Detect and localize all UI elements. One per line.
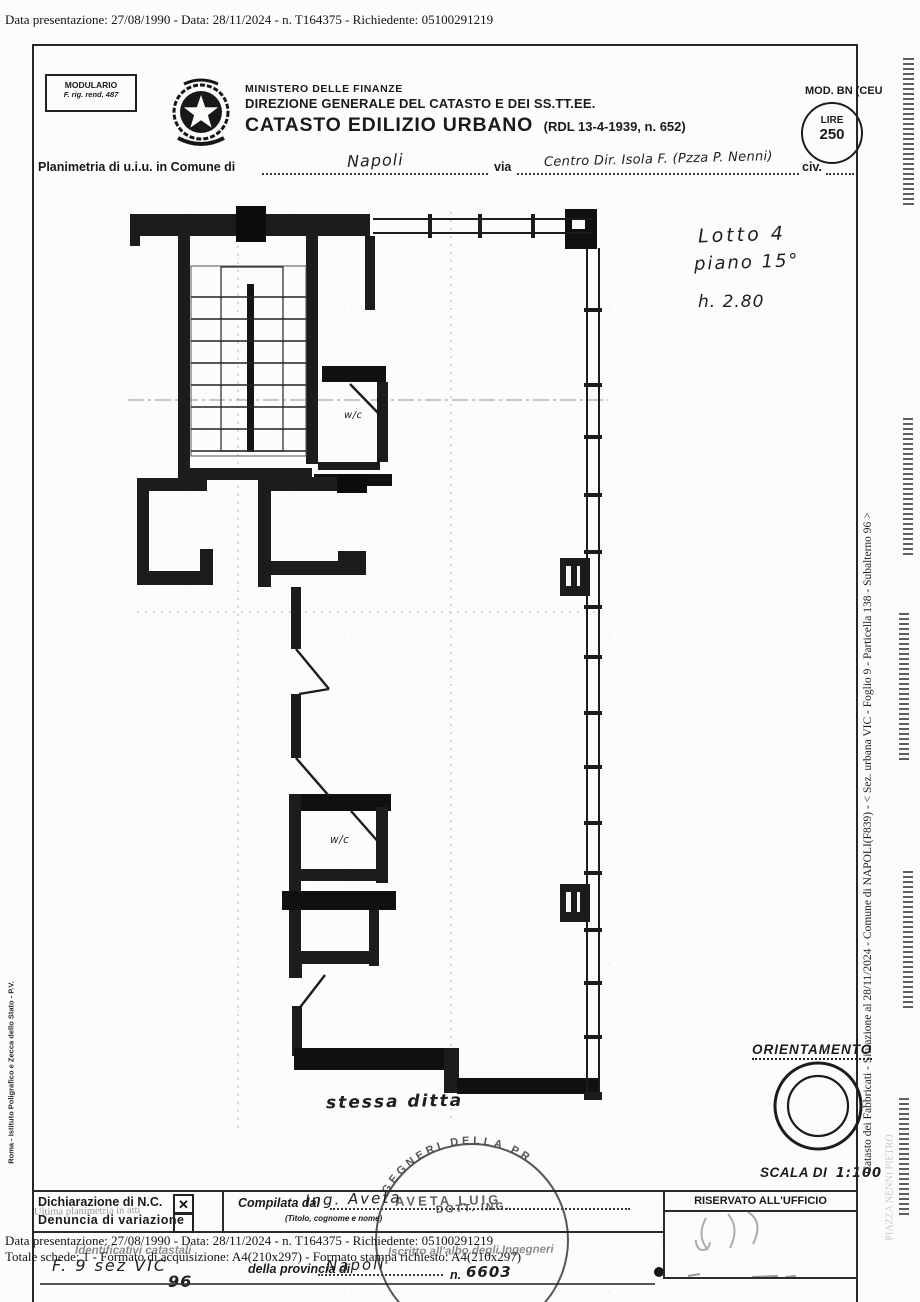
scanned-cadastral-document: Data presentazione: 27/08/1990 - Data: 2… (0, 0, 920, 1302)
scan-noise-bar (899, 610, 909, 760)
riservato-label: RISERVATO ALL'UFFICIO (665, 1192, 856, 1212)
scale-label: SCALA DI (760, 1165, 827, 1180)
subalterno-handwritten: 96 (168, 1272, 192, 1291)
orientation-label: ORIENTAMENTO (752, 1042, 872, 1060)
footer-bottom-rule (40, 1283, 655, 1285)
scale-value: 1:100 (836, 1166, 882, 1181)
right-margin-vertical-text-faint: PIAZZA NENNI PIETRO (885, 1038, 896, 1302)
annotation-wc-upper: w/c (344, 410, 363, 421)
annotation-height: h. 2.80 (698, 292, 764, 312)
compilata-handwritten: Ing. Aveta (305, 1188, 402, 1209)
svg-text:GEGNERI DELLA PR: GEGNERI DELLA PR (380, 1135, 535, 1196)
compilata-name-stamp: AVETA LUIG (395, 1192, 502, 1209)
guide-lines (137, 206, 600, 1128)
scan-noise-bar (903, 415, 913, 555)
window-walls (373, 219, 599, 1098)
scan-noise-bar (903, 868, 913, 1008)
walls (130, 206, 602, 1100)
stamp-arc-text: GEGNERI DELLA PR (380, 1135, 535, 1196)
annotation-stessa-ditta: stessa ditta (326, 1091, 463, 1113)
scan-noise-bar (903, 55, 914, 205)
orientation-circle (775, 1063, 861, 1149)
footer-divider-1 (222, 1190, 224, 1233)
riservato-box: RISERVATO ALL'UFFICIO (663, 1190, 858, 1279)
foglio-handwritten: F. 9 sez VIC (52, 1256, 167, 1275)
dichiarazione-checkbox: ✕ (173, 1194, 194, 1214)
annotation-lotto: Lotto 4 (698, 222, 787, 247)
scan-noise-bar (899, 1095, 909, 1215)
denuncia-checkbox (173, 1213, 194, 1233)
denuncia-label: Denuncia di variazione (38, 1213, 184, 1227)
left-margin-printer-credit: Roma - Istituto Poligrafico e Zecca dell… (7, 942, 16, 1204)
right-margin-vertical-text: Catasto dei Fabbricati - Situazione al 2… (862, 393, 874, 1293)
checkbox-x-glyph: ✕ (178, 1198, 189, 1211)
n-label: n. (450, 1268, 461, 1282)
n-handwritten: 6603 (466, 1263, 512, 1281)
provincia-handwritten: Napoli (326, 1255, 386, 1275)
titolo-note: (Titolo, cognome e nome) (285, 1214, 382, 1223)
compilata-field (330, 1208, 630, 1210)
annotation-wc-lower: w/c (330, 834, 349, 846)
annotation-piano: piano 15° (694, 250, 800, 275)
